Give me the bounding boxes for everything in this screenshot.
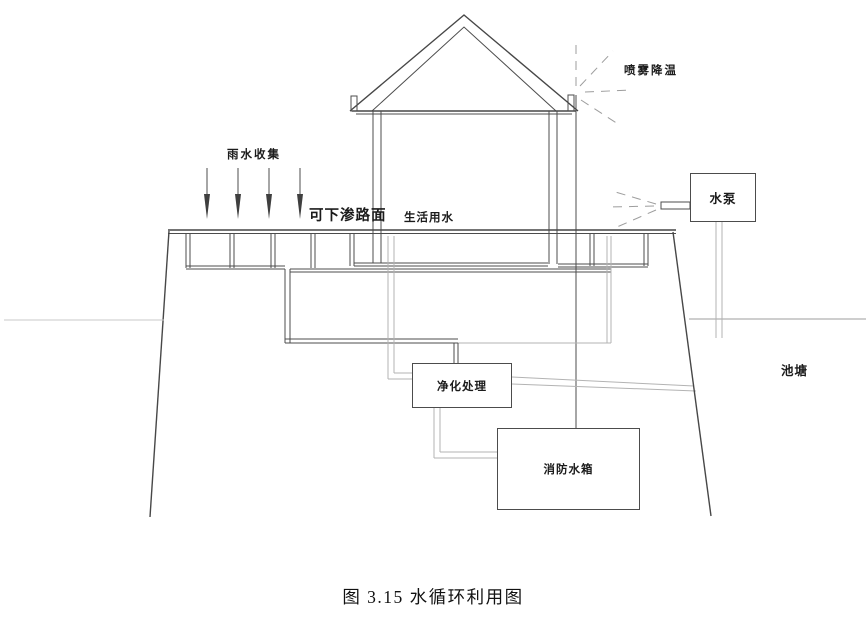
pump-nozzle-icon (661, 202, 690, 209)
pond-label: 池塘 (781, 360, 808, 379)
pump-box-label: 水泵 (709, 188, 736, 207)
house-section (350, 15, 578, 264)
diagram-linework (0, 0, 866, 620)
domestic-water-label: 生活用水 (404, 209, 454, 225)
fire-tank-box: 消防水箱 (497, 428, 640, 510)
purification-box: 净化处理 (412, 363, 512, 408)
fire-tank-box-label: 消防水箱 (544, 461, 594, 477)
roof-spray-rays-icon (576, 44, 632, 124)
purification-box-label: 净化处理 (437, 378, 487, 394)
ground-surface (168, 230, 676, 234)
pipe-purifier-to-tank (434, 408, 497, 458)
rain-arrows-icon (204, 168, 303, 219)
rain-collection-label: 雨水收集 (227, 146, 281, 162)
figure-caption: 图 3.15 水循环利用图 (0, 584, 866, 609)
collection-chamber (285, 236, 611, 363)
permeable-pavement-label: 可下渗路面 (309, 204, 387, 225)
infiltration-cells (186, 234, 648, 269)
pipe-purifier-to-pond (512, 377, 696, 391)
pipe-house-to-purifier (388, 236, 412, 379)
roof-outer-line (350, 15, 578, 111)
pump-box: 水泵 (690, 173, 756, 222)
left-slope-line (150, 231, 169, 517)
right-slope-line (673, 232, 711, 516)
pump-spray-rays-icon (610, 191, 656, 227)
water-recycle-diagram: 水泵 净化处理 消防水箱 雨水收集 可下渗路面 生活用水 喷雾降温 池塘 图 3… (0, 0, 866, 620)
spray-cooling-label: 喷雾降温 (624, 62, 678, 78)
